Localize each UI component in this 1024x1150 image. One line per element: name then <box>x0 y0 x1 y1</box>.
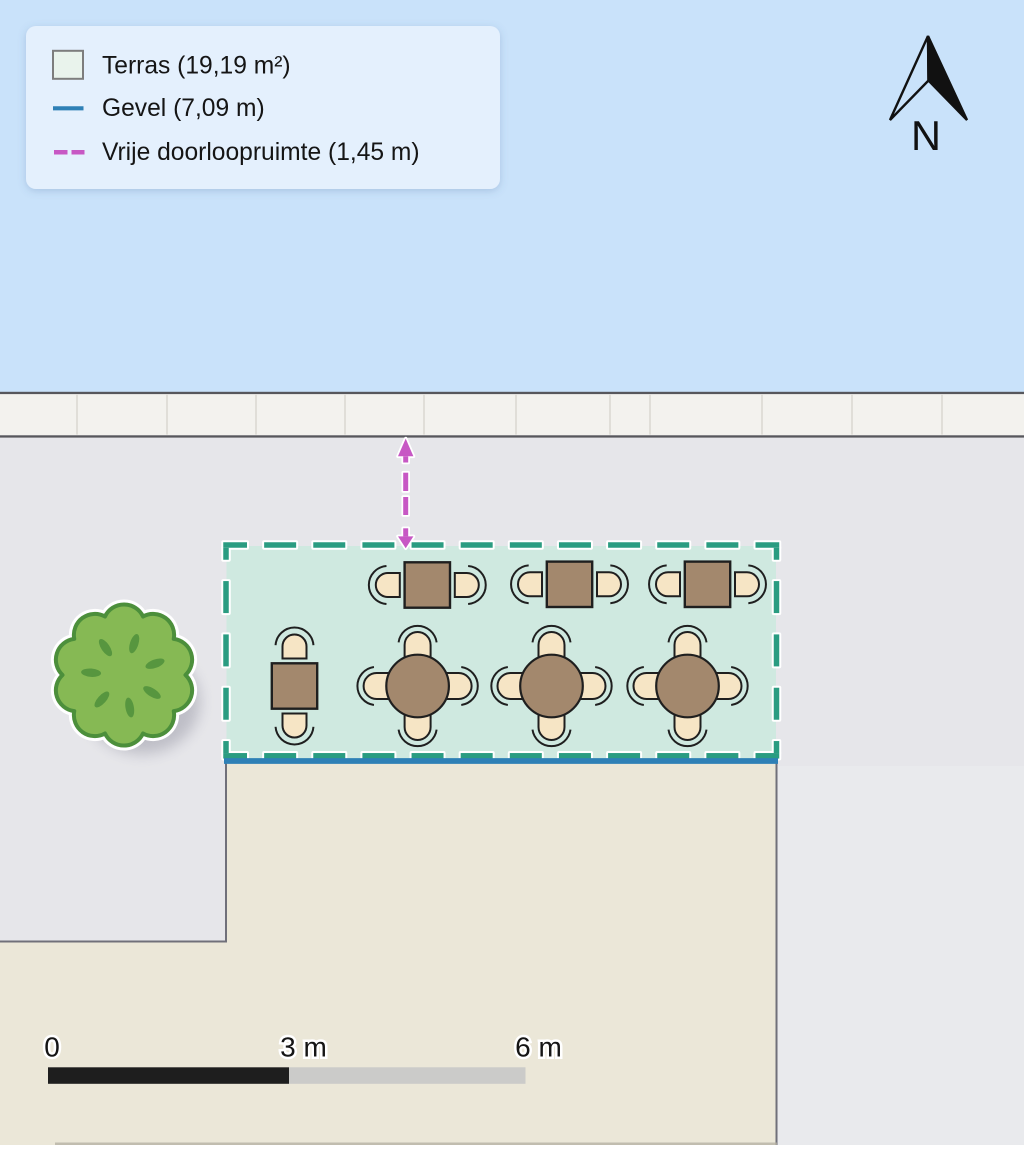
svg-text:Vrije doorloopruimte (1,45 m): Vrije doorloopruimte (1,45 m) <box>102 139 420 166</box>
svg-text:0: 0 <box>44 1032 60 1063</box>
svg-text:6 m: 6 m <box>515 1032 562 1063</box>
svg-text:Terras (19,19 m²): Terras (19,19 m²) <box>102 53 291 80</box>
svg-text:3 m: 3 m <box>280 1032 327 1063</box>
svg-text:Gevel (7,09 m): Gevel (7,09 m) <box>102 95 265 122</box>
svg-text:N: N <box>911 112 941 159</box>
